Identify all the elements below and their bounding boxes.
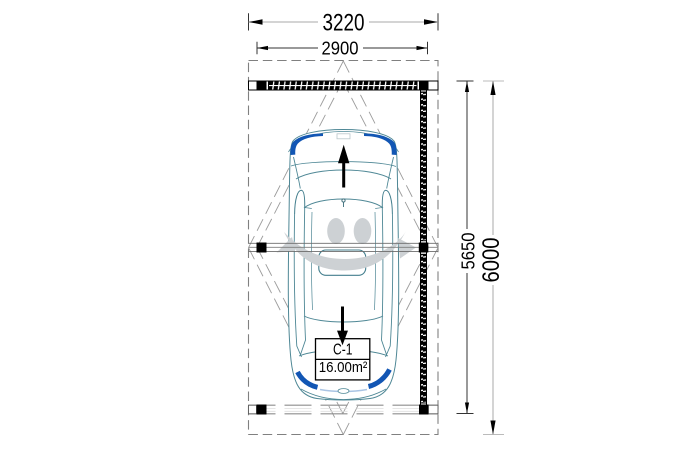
svg-text:5650: 5650 [459,233,479,270]
svg-text:6000: 6000 [478,238,505,283]
svg-text:2900: 2900 [322,39,359,59]
svg-text:3220: 3220 [323,10,365,37]
svg-text:16.00m²: 16.00m² [319,359,368,376]
